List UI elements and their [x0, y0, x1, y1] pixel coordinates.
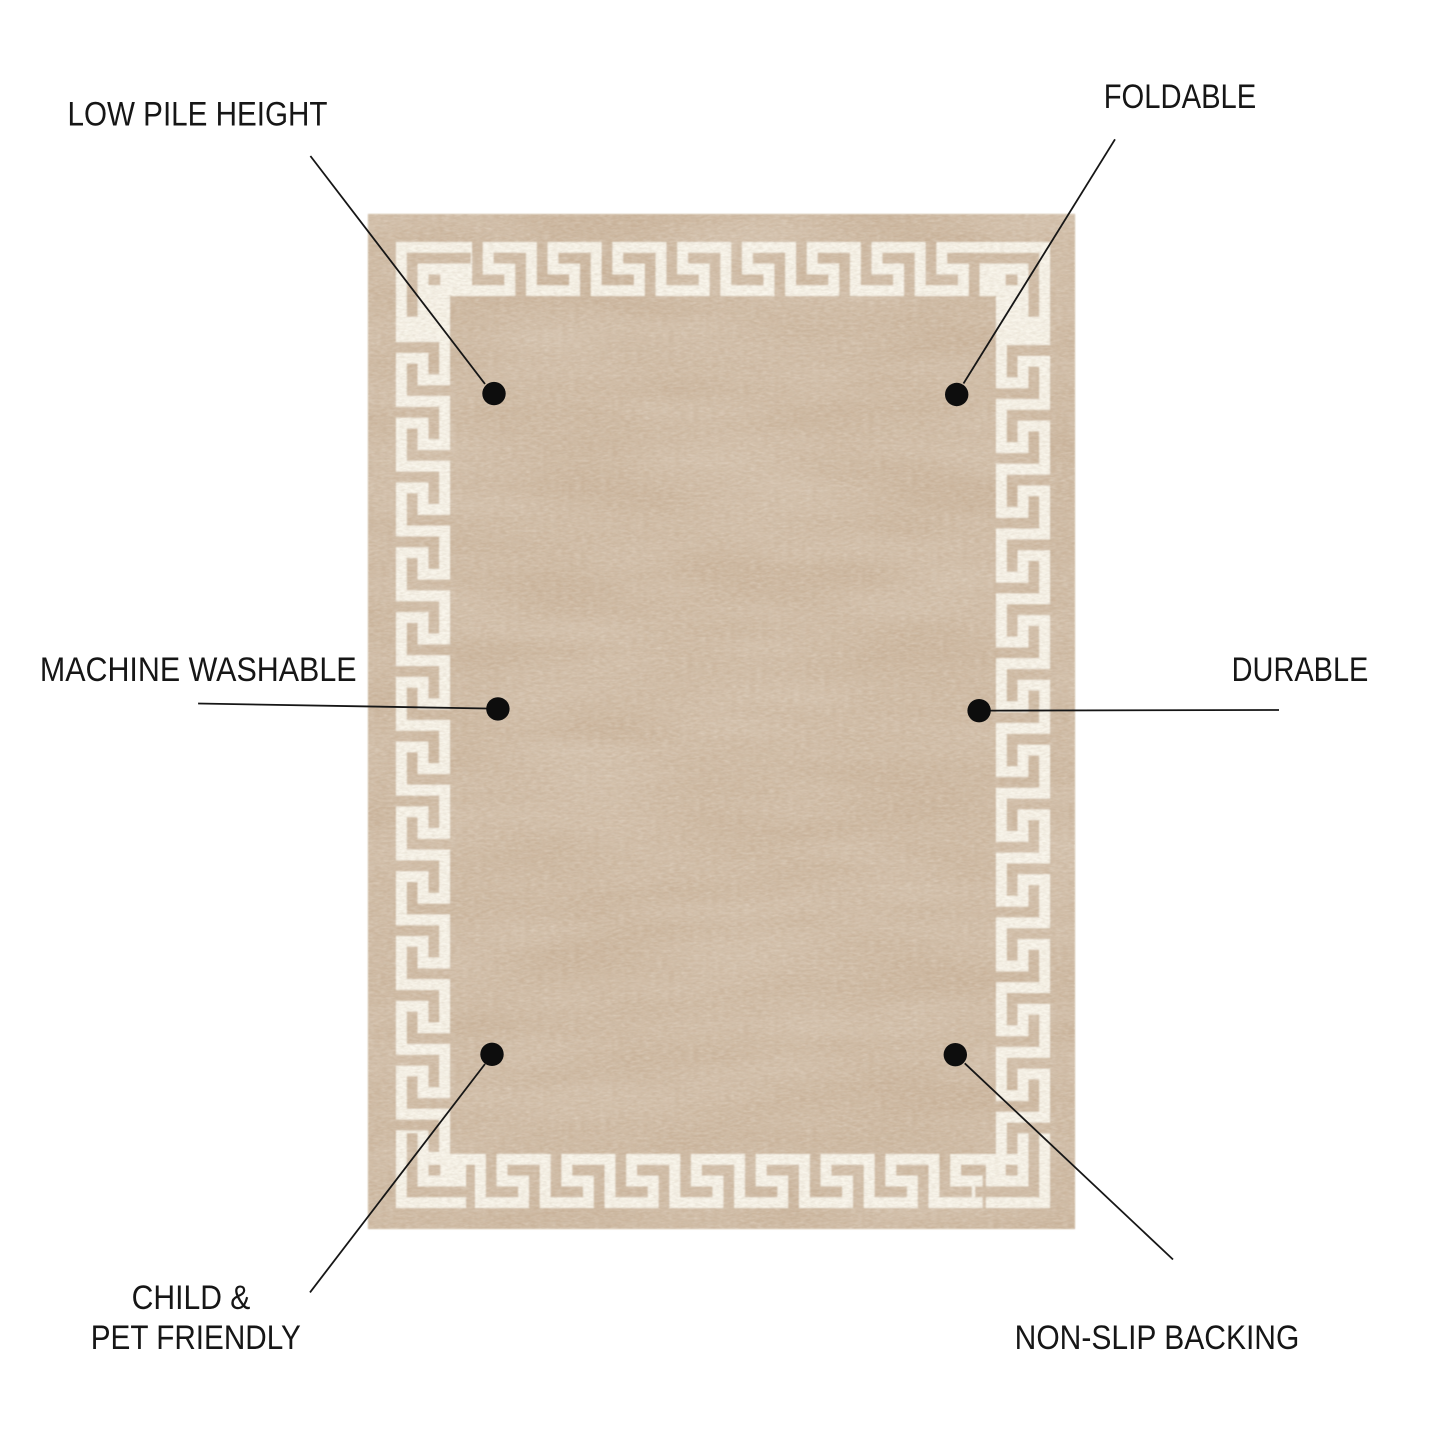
svg-text:LOW PILE HEIGHT: LOW PILE HEIGHT: [68, 96, 328, 134]
svg-text:CHILD &: CHILD &: [132, 1279, 251, 1317]
svg-text:FOLDABLE: FOLDABLE: [1104, 78, 1257, 116]
svg-text:NON-SLIP BACKING: NON-SLIP BACKING: [1015, 1319, 1300, 1357]
svg-text:DURABLE: DURABLE: [1232, 651, 1369, 689]
svg-text:MACHINE WASHABLE: MACHINE WASHABLE: [40, 651, 357, 689]
svg-text:PET FRIENDLY: PET FRIENDLY: [91, 1319, 301, 1357]
